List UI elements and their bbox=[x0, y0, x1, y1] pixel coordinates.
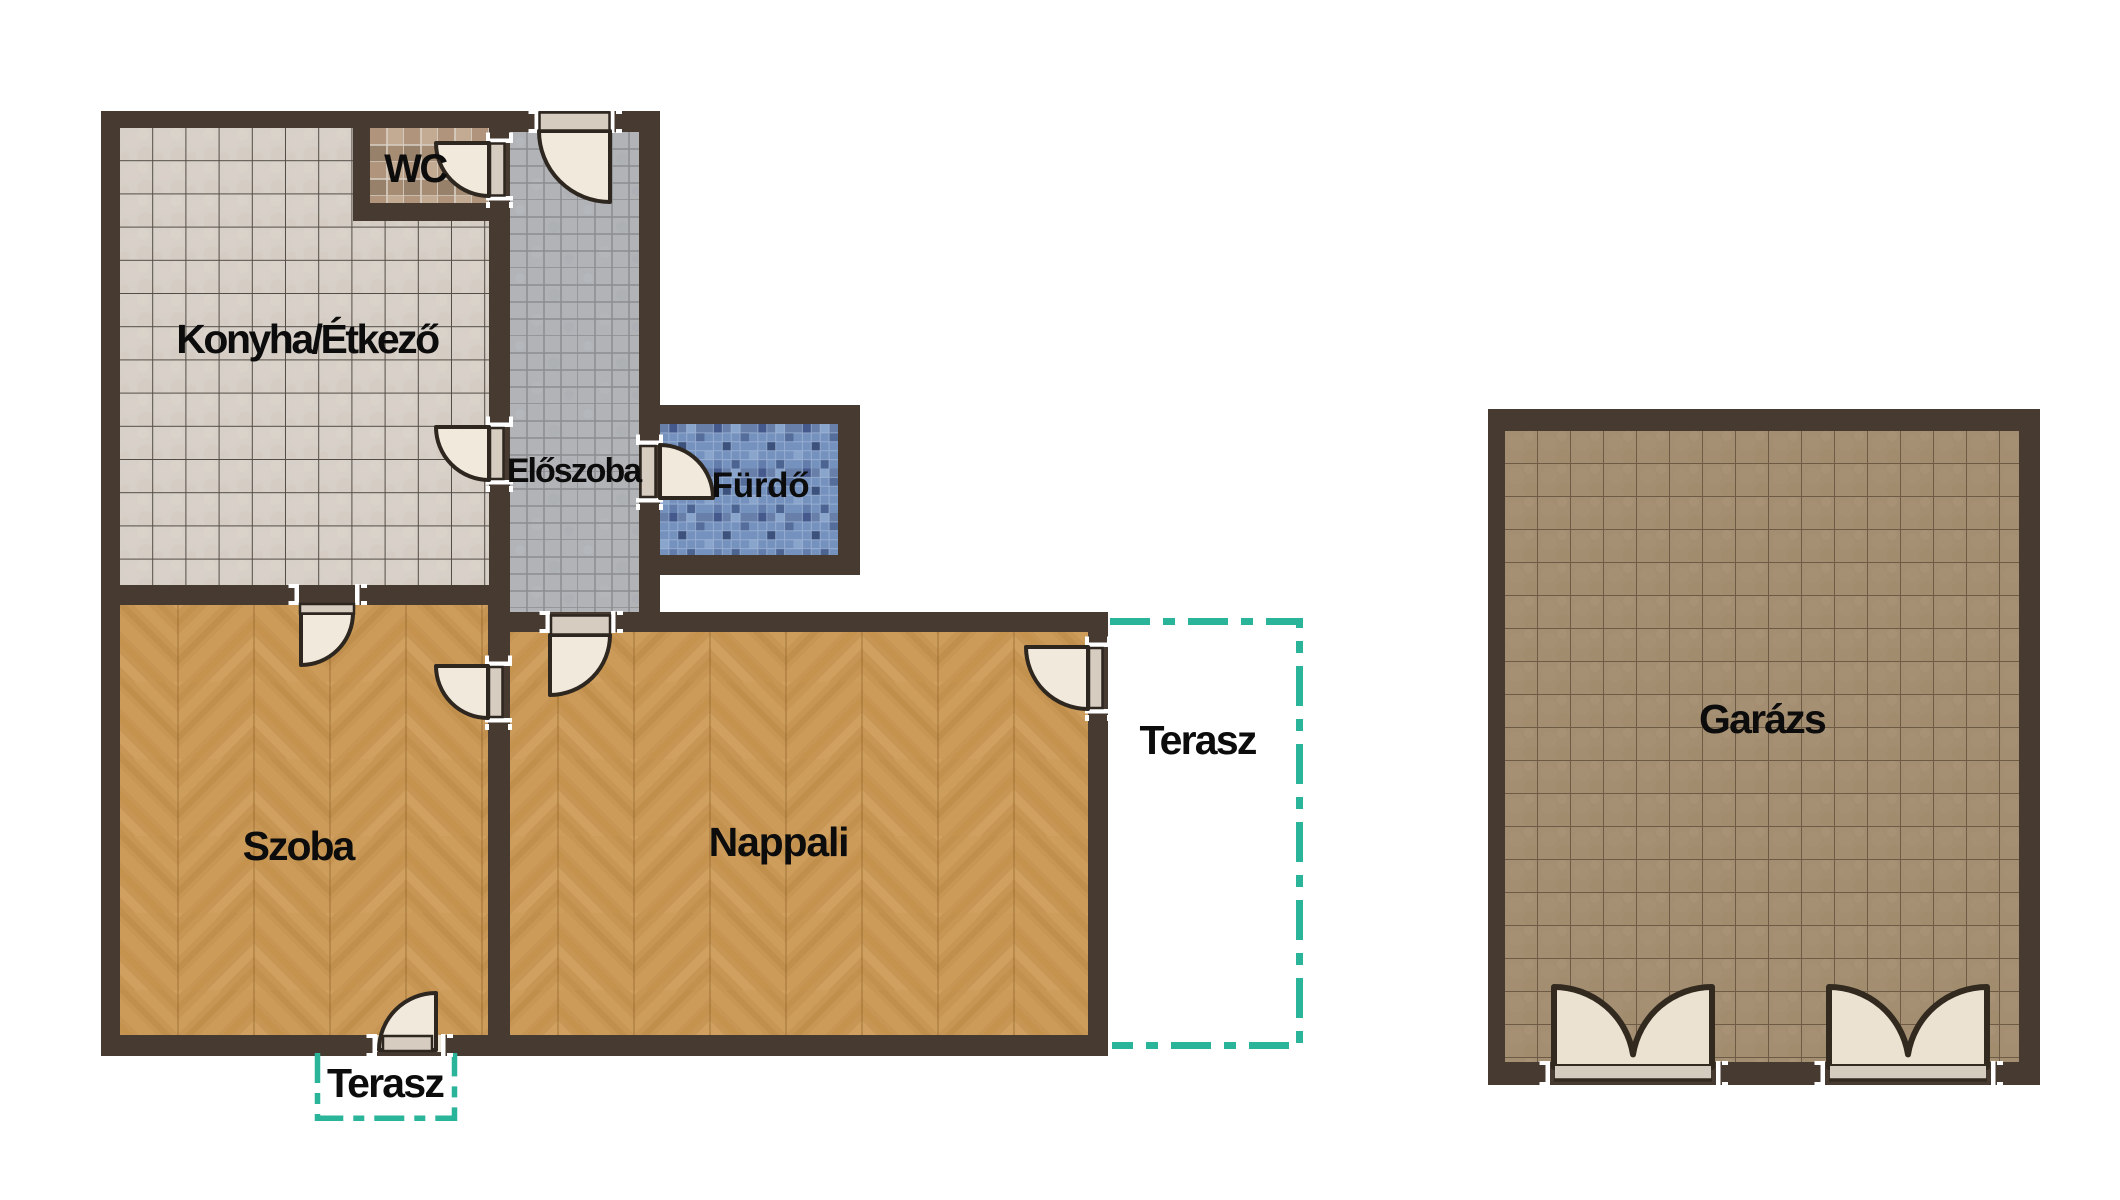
svg-text:Garázs: Garázs bbox=[1699, 696, 1826, 742]
svg-text:Fürdő: Fürdő bbox=[712, 466, 810, 505]
svg-text:Konyha/Étkező: Konyha/Étkező bbox=[176, 316, 439, 362]
svg-text:Előszoba: Előszoba bbox=[507, 452, 643, 490]
svg-text:Nappali: Nappali bbox=[709, 819, 849, 865]
svg-text:Terasz: Terasz bbox=[1139, 717, 1256, 763]
svg-text:WC: WC bbox=[384, 147, 447, 191]
svg-text:Terasz: Terasz bbox=[327, 1060, 444, 1106]
svg-text:Szoba: Szoba bbox=[243, 823, 357, 869]
